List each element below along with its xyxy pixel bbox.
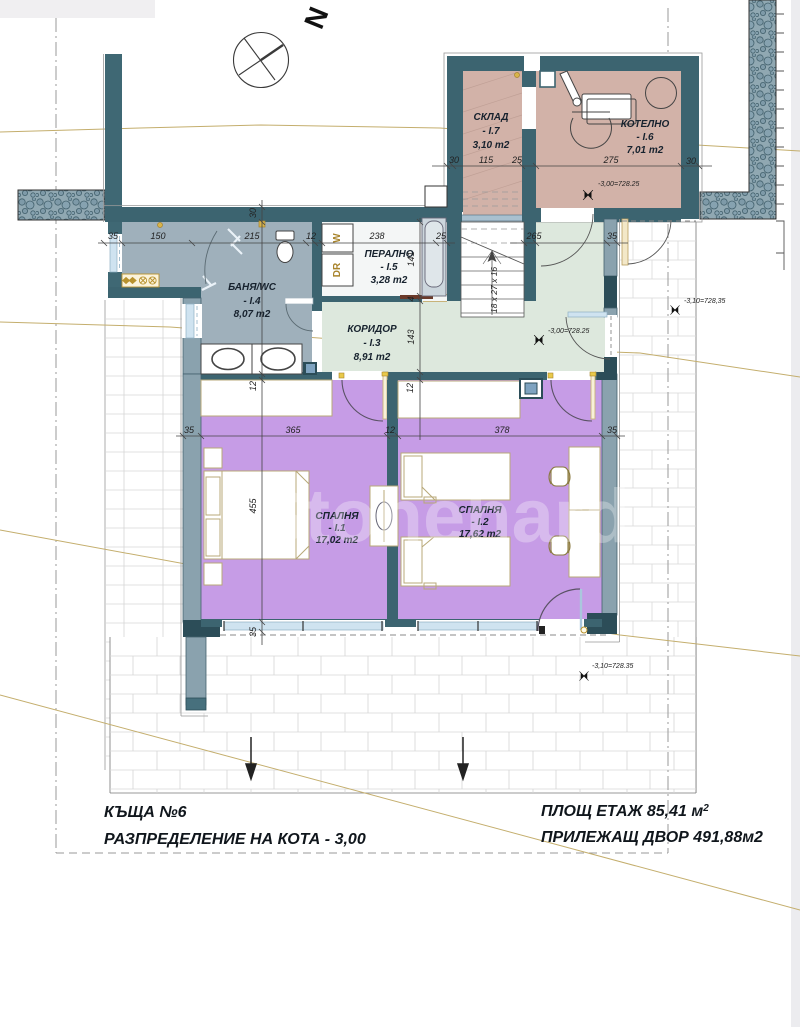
- svg-text:КОРИДОР: КОРИДОР: [347, 324, 397, 335]
- svg-text:35: 35: [248, 626, 258, 637]
- svg-text:Stonehard: Stonehard: [254, 474, 630, 559]
- svg-text:25: 25: [435, 231, 447, 241]
- svg-text:30: 30: [449, 155, 459, 165]
- svg-text:30: 30: [686, 156, 696, 166]
- svg-text:265: 265: [525, 231, 542, 241]
- svg-text:- І.4: - І.4: [243, 296, 261, 307]
- svg-text:35: 35: [184, 425, 195, 435]
- svg-text:115: 115: [479, 155, 494, 165]
- svg-text:12: 12: [306, 231, 316, 241]
- svg-text:-3,00=728.25: -3,00=728.25: [598, 181, 640, 188]
- svg-text:4: 4: [406, 296, 416, 301]
- svg-text:7,01 m2: 7,01 m2: [627, 145, 664, 156]
- svg-text:-3,00=728.25: -3,00=728.25: [548, 328, 590, 335]
- svg-text:215: 215: [243, 231, 260, 241]
- svg-text:35: 35: [108, 231, 119, 241]
- svg-text:12: 12: [405, 383, 415, 393]
- svg-text:3,28 m2: 3,28 m2: [371, 275, 408, 286]
- svg-text:8,91 m2: 8,91 m2: [354, 352, 391, 363]
- svg-text:141: 141: [406, 251, 416, 266]
- svg-text:КЪЩА №6: КЪЩА №6: [104, 804, 187, 821]
- svg-text:КОТЕЛНО: КОТЕЛНО: [621, 119, 670, 130]
- svg-text:-3,10=728.35: -3,10=728.35: [592, 663, 634, 670]
- svg-text:8,07 m2: 8,07 m2: [234, 309, 271, 320]
- svg-text:- І.6: - І.6: [636, 132, 654, 143]
- svg-text:- І.5: - І.5: [380, 262, 398, 273]
- svg-text:- І.7: - І.7: [482, 126, 500, 137]
- svg-text:365: 365: [285, 425, 301, 435]
- svg-text:30: 30: [248, 208, 258, 218]
- svg-text:12: 12: [385, 425, 395, 435]
- svg-text:12: 12: [248, 381, 258, 391]
- svg-text:БАНЯ/WC: БАНЯ/WC: [228, 282, 277, 293]
- svg-text:3,10 m2: 3,10 m2: [473, 140, 510, 151]
- svg-text:143: 143: [406, 329, 416, 344]
- svg-text:455: 455: [248, 498, 258, 514]
- svg-text:ПРИЛЕЖАЩ ДВОР 491,88м2: ПРИЛЕЖАЩ ДВОР 491,88м2: [541, 829, 763, 846]
- svg-text:-3,10=728,35: -3,10=728,35: [684, 298, 726, 305]
- svg-text:РАЗПРЕДЕЛЕНИЕ НА КОТА - 3,00: РАЗПРЕДЕЛЕНИЕ НА КОТА - 3,00: [104, 831, 366, 848]
- svg-text:378: 378: [494, 425, 509, 435]
- svg-text:DR: DR: [332, 262, 343, 277]
- svg-text:238: 238: [368, 231, 384, 241]
- svg-text:W: W: [332, 233, 343, 243]
- svg-text:25: 25: [511, 155, 523, 165]
- svg-text:СКЛАД: СКЛАД: [473, 112, 508, 123]
- svg-text:35: 35: [607, 425, 618, 435]
- svg-text:35: 35: [607, 231, 618, 241]
- svg-text:18 x 27 x 16: 18 x 27 x 16: [489, 267, 499, 314]
- svg-text:275: 275: [602, 155, 619, 165]
- svg-text:- І.3: - І.3: [363, 338, 381, 349]
- svg-text:ПЛОЩ ЕТАЖ 85,41 м2: ПЛОЩ ЕТАЖ 85,41 м2: [541, 803, 709, 820]
- svg-text:150: 150: [150, 231, 165, 241]
